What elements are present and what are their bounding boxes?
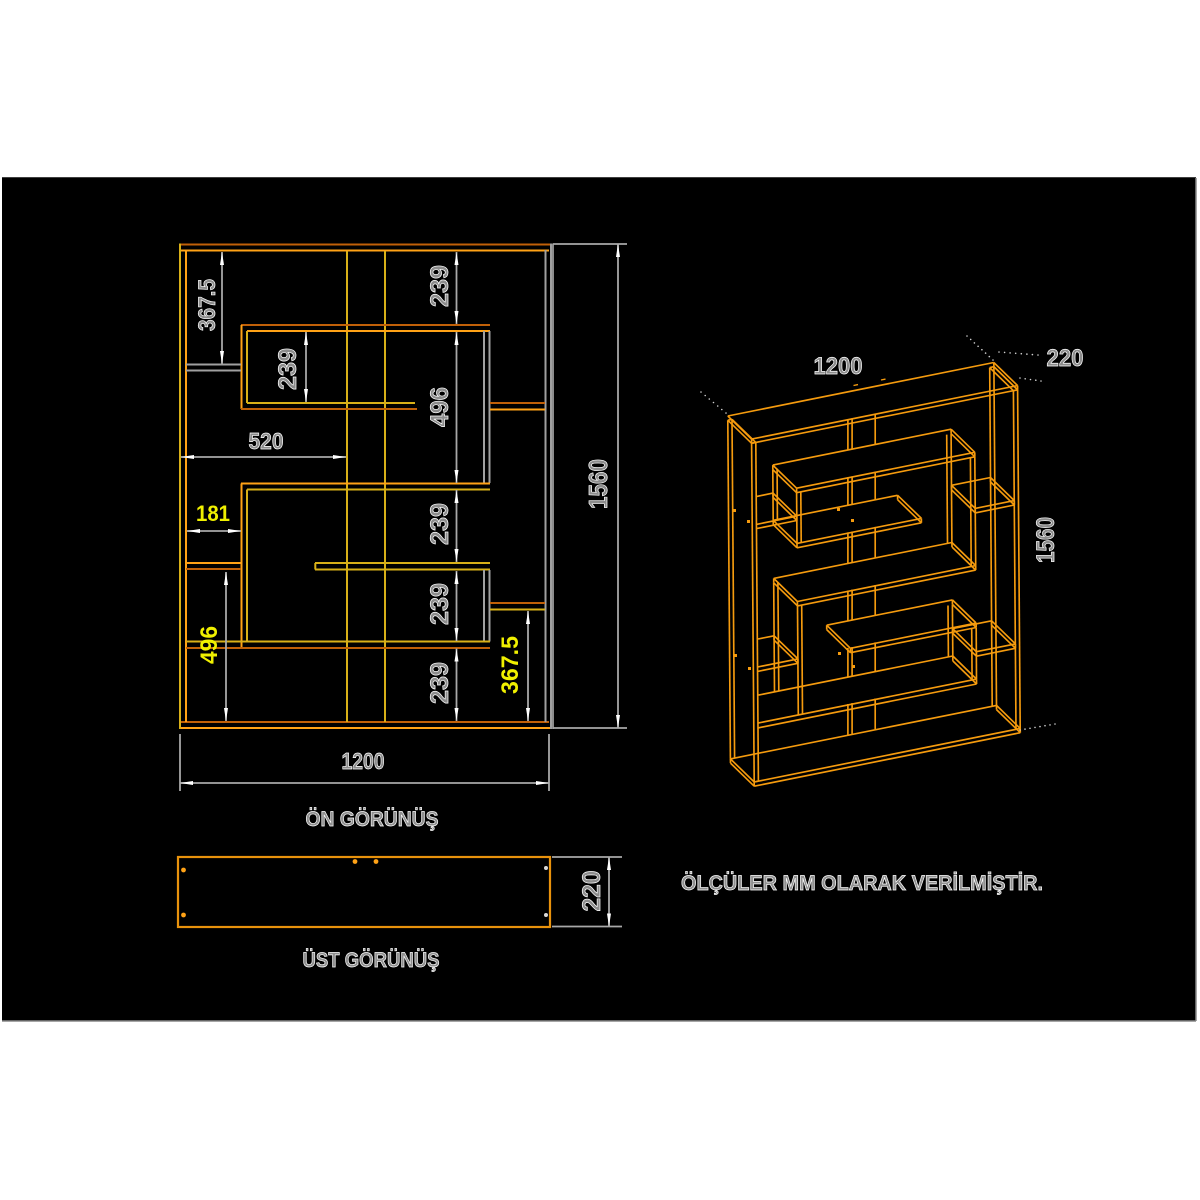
svg-text:367.5: 367.5 (497, 636, 524, 694)
svg-text:239: 239 (426, 583, 454, 625)
svg-text:239: 239 (426, 662, 454, 704)
svg-text:1200: 1200 (342, 748, 385, 774)
svg-text:239: 239 (426, 503, 454, 545)
svg-text:ÖLÇÜLER MM OLARAK VERİLMİŞTİR.: ÖLÇÜLER MM OLARAK VERİLMİŞTİR. (681, 872, 1043, 895)
svg-text:ÖN GÖRÜNÜŞ: ÖN GÖRÜNÜŞ (306, 808, 439, 831)
svg-text:181: 181 (196, 501, 230, 526)
svg-text:496: 496 (426, 387, 454, 427)
svg-text:220: 220 (578, 871, 606, 912)
svg-text:220: 220 (1047, 345, 1084, 372)
svg-text:496: 496 (196, 626, 223, 664)
svg-text:239: 239 (274, 348, 302, 390)
svg-text:520: 520 (249, 428, 284, 454)
svg-text:1200: 1200 (814, 353, 863, 380)
svg-text:ÜST GÖRÜNÜŞ: ÜST GÖRÜNÜŞ (303, 949, 440, 972)
svg-text:367.5: 367.5 (194, 279, 221, 331)
svg-text:239: 239 (426, 265, 454, 307)
svg-text:1560: 1560 (1032, 517, 1060, 563)
svg-text:1560: 1560 (583, 459, 613, 509)
